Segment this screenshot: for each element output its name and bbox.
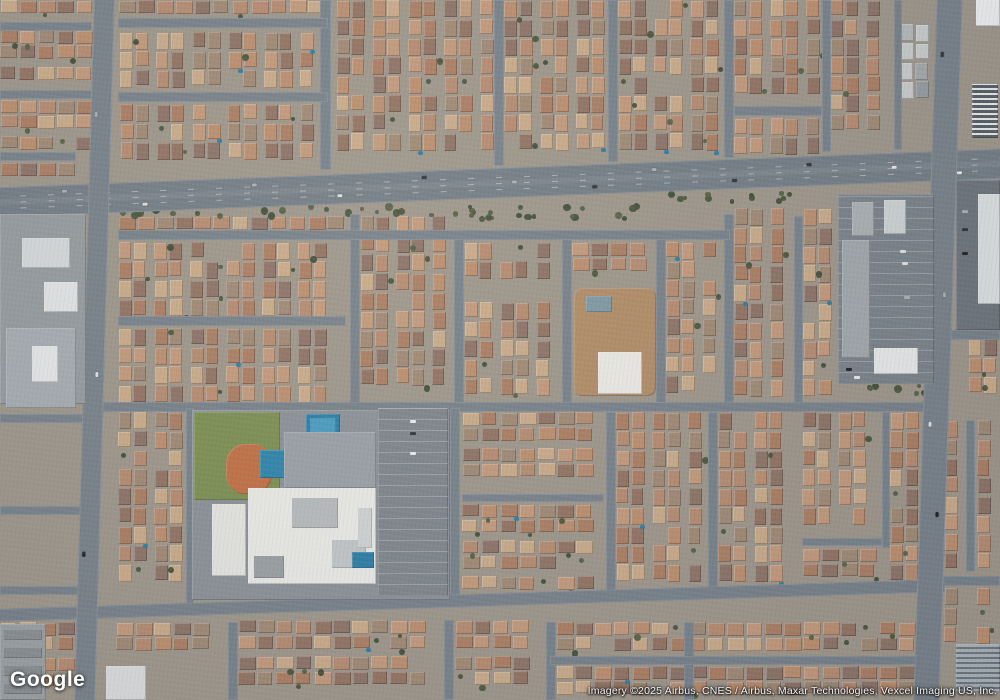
map-house — [352, 1, 365, 18]
map-house — [572, 243, 589, 256]
map-house — [134, 527, 147, 544]
map-house — [327, 216, 344, 229]
map-house — [653, 489, 665, 506]
map-house — [501, 321, 514, 338]
map-house — [842, 666, 859, 679]
map-house — [242, 243, 255, 260]
map-house — [412, 331, 424, 346]
map-tree — [592, 270, 598, 276]
map-house — [134, 243, 147, 260]
map-street — [118, 316, 346, 326]
map-house — [39, 1, 56, 13]
map-house — [804, 285, 817, 302]
map-house — [433, 254, 446, 269]
map-house — [455, 657, 472, 670]
map-house — [412, 311, 425, 328]
map-street — [0, 22, 92, 31]
map-house — [653, 564, 666, 579]
map-house — [372, 671, 387, 684]
map-house — [263, 329, 276, 346]
map-house — [134, 469, 147, 486]
map-house — [227, 348, 240, 363]
map-house — [519, 114, 532, 131]
map-tree — [718, 67, 722, 71]
map-house — [746, 667, 763, 680]
map-house — [830, 76, 843, 91]
map-house — [830, 0, 843, 15]
map-tree — [296, 684, 301, 689]
map-house — [630, 258, 647, 271]
map-house — [689, 432, 702, 449]
map-house — [906, 432, 919, 449]
map-house — [592, 38, 604, 55]
vehicle — [732, 179, 737, 182]
map-house — [520, 1, 532, 16]
map-street — [0, 506, 86, 515]
map-house — [121, 124, 134, 139]
map-house — [262, 367, 275, 384]
map-house — [691, 115, 703, 132]
map-house — [410, 636, 425, 648]
map-house — [632, 565, 645, 580]
map-house — [229, 32, 242, 49]
map-house — [750, 138, 763, 153]
map-house — [804, 228, 817, 245]
map-house — [191, 367, 203, 384]
map-house — [667, 507, 680, 522]
map-house — [390, 672, 407, 684]
map-house — [634, 39, 647, 54]
map-house — [831, 20, 843, 37]
map-house — [171, 52, 183, 69]
map-tree — [821, 363, 826, 368]
map-house — [703, 299, 716, 316]
vehicle — [337, 194, 342, 197]
map-house — [475, 657, 492, 670]
map-house — [519, 428, 534, 441]
map-house — [396, 311, 409, 328]
map-house — [119, 281, 132, 298]
map-house — [592, 258, 607, 270]
map-house — [409, 77, 422, 94]
map-house — [556, 134, 569, 151]
map-house — [501, 520, 516, 532]
map-house — [314, 261, 326, 278]
map-house — [170, 432, 183, 449]
map-house — [423, 38, 436, 55]
map-house — [591, 243, 608, 256]
map-house — [667, 451, 679, 468]
map-house — [867, 76, 880, 91]
map-house — [891, 413, 904, 430]
map-house — [750, 227, 763, 244]
map-house — [299, 386, 311, 403]
map-house — [57, 115, 74, 128]
map-house — [388, 95, 401, 112]
map-house — [20, 137, 37, 150]
satellite-map-canvas[interactable]: Google Imagery ©2025 Airbus, CNES / Airb… — [0, 0, 1000, 700]
map-house — [668, 432, 681, 447]
map-house — [298, 281, 310, 298]
map-house — [819, 209, 832, 224]
map-house — [557, 622, 574, 635]
map-tree — [131, 212, 139, 220]
vehicle — [962, 210, 968, 213]
map-house — [654, 115, 667, 130]
map-tree — [318, 669, 324, 675]
map-house — [171, 143, 183, 160]
map-house — [119, 386, 132, 403]
map-house — [481, 556, 496, 568]
vehicle — [962, 228, 968, 231]
map-street — [550, 656, 930, 665]
map-house — [770, 469, 783, 486]
map-house — [846, 114, 859, 129]
map-house — [632, 470, 645, 485]
map-house — [463, 464, 480, 476]
map-house — [136, 105, 149, 122]
map-house — [803, 508, 816, 525]
map-house — [652, 432, 665, 449]
map-house — [734, 285, 747, 302]
map-tree — [159, 126, 164, 131]
map-house — [668, 527, 681, 544]
vehicle — [592, 185, 597, 188]
map-house — [555, 115, 568, 132]
map-house — [733, 470, 746, 487]
map-house — [57, 1, 74, 13]
map-house — [397, 255, 410, 270]
map-house — [373, 76, 386, 93]
map-house — [278, 347, 291, 362]
map-house — [557, 464, 574, 477]
map-house — [290, 217, 305, 230]
map-house — [463, 413, 480, 426]
map-house — [803, 549, 820, 562]
map-house — [482, 464, 499, 477]
map-house — [819, 380, 832, 395]
map-house — [733, 507, 745, 522]
map-house — [298, 329, 311, 346]
map-house — [361, 312, 374, 329]
map-house — [839, 413, 852, 430]
retail-building-b — [884, 200, 906, 234]
map-house — [121, 142, 133, 159]
map-house — [591, 1, 604, 18]
map-house — [555, 57, 567, 74]
map-house — [866, 20, 879, 37]
map-street — [724, 214, 734, 408]
construction-pool — [586, 296, 612, 312]
map-house — [575, 666, 592, 679]
map-house — [784, 666, 801, 678]
map-house — [719, 507, 732, 524]
map-pool — [640, 525, 645, 529]
map-house — [557, 505, 574, 518]
map-house — [361, 254, 373, 271]
map-house — [252, 1, 269, 14]
map-house — [576, 541, 593, 554]
map-house — [244, 104, 257, 119]
map-house — [157, 105, 170, 122]
map-house — [412, 274, 425, 291]
map-house — [804, 342, 817, 359]
map-house — [334, 672, 351, 685]
map-house — [58, 163, 75, 176]
map-house — [120, 33, 133, 50]
map-house — [734, 432, 747, 449]
map-house — [905, 527, 918, 542]
map-house — [227, 300, 239, 317]
map-house — [770, 545, 782, 562]
map-tree — [25, 128, 30, 133]
map-house — [264, 124, 277, 141]
map-house — [191, 242, 204, 257]
map-pool — [514, 517, 519, 521]
map-house — [750, 380, 762, 397]
map-house — [58, 45, 75, 58]
map-tree — [324, 207, 329, 212]
vehicle — [935, 512, 938, 517]
map-house — [375, 330, 388, 347]
map-tree — [776, 198, 782, 204]
map-house — [538, 448, 555, 460]
map-tree — [390, 117, 395, 122]
map-house — [631, 527, 644, 544]
map-tree — [195, 211, 199, 215]
map-house — [314, 366, 327, 381]
imagery-attribution: Imagery ©2025 Airbus, CNES / Airbus, Max… — [588, 685, 997, 697]
map-house — [412, 350, 425, 365]
map-house — [770, 266, 783, 283]
retail-strip-building — [842, 240, 870, 358]
map-house — [516, 303, 529, 320]
map-house — [915, 63, 928, 80]
map-house — [853, 412, 865, 427]
map-house — [314, 300, 326, 317]
map-house — [155, 432, 167, 449]
map-house — [766, 667, 783, 680]
map-house — [839, 432, 851, 449]
map-house — [668, 565, 680, 582]
map-house — [880, 622, 895, 634]
map-house — [632, 412, 645, 429]
map-house — [376, 368, 388, 385]
map-house — [667, 262, 680, 279]
map-house — [424, 20, 436, 37]
map-house — [750, 246, 762, 261]
map-house — [298, 348, 310, 365]
map-house — [387, 0, 400, 17]
map-house — [734, 527, 747, 542]
map-house — [194, 217, 211, 229]
map-house — [867, 115, 880, 130]
map-house — [157, 71, 169, 88]
map-house — [703, 281, 716, 296]
map-house — [614, 638, 631, 651]
vehicle — [82, 552, 85, 557]
map-house — [501, 504, 518, 517]
map-house — [703, 356, 716, 373]
map-house — [169, 261, 181, 276]
map-tree — [683, 3, 688, 8]
map-house — [633, 667, 650, 680]
map-house — [193, 623, 210, 636]
map-house — [154, 508, 167, 525]
map-house — [295, 636, 312, 649]
map-house — [155, 637, 172, 650]
map-house — [119, 527, 132, 544]
map-house — [769, 412, 782, 429]
map-house — [176, 217, 193, 229]
map-tree — [302, 669, 307, 674]
map-house — [537, 322, 550, 337]
map-house — [205, 367, 217, 384]
map-house — [771, 77, 784, 94]
map-house — [481, 39, 494, 54]
map-house — [462, 504, 479, 516]
map-house — [541, 134, 553, 149]
map-street — [708, 412, 718, 598]
map-house — [314, 386, 326, 403]
map-house — [555, 39, 568, 56]
map-house — [634, 19, 647, 36]
map-house — [866, 58, 879, 75]
map-house — [670, 96, 683, 113]
map-street — [606, 412, 616, 598]
map-house — [371, 656, 388, 669]
map-house — [669, 19, 682, 36]
map-house — [227, 261, 240, 276]
map-house — [944, 608, 957, 625]
map-tree — [694, 323, 700, 329]
map-house — [576, 412, 593, 424]
map-house — [853, 450, 866, 467]
map-house — [372, 58, 384, 75]
map-house — [945, 588, 958, 605]
map-tree — [168, 567, 174, 573]
map-house — [277, 243, 290, 260]
east-white-building — [978, 194, 1000, 304]
map-house — [945, 534, 958, 551]
map-house — [155, 385, 168, 402]
map-house — [766, 638, 783, 651]
google-logo[interactable]: Google — [10, 668, 85, 692]
map-house — [537, 302, 550, 319]
map-tree — [279, 207, 286, 214]
map-house — [670, 133, 683, 148]
map-house — [134, 488, 147, 505]
map-house — [77, 1, 92, 13]
map-house — [819, 304, 832, 321]
map-house — [353, 636, 370, 648]
map-house — [409, 1, 422, 18]
map-house — [296, 621, 311, 634]
map-house — [520, 413, 537, 425]
map-house — [977, 588, 990, 605]
map-house — [169, 413, 182, 430]
map-house — [652, 623, 669, 635]
map-house — [891, 508, 903, 523]
map-house — [480, 76, 493, 93]
map-house — [890, 565, 903, 580]
map-house — [755, 451, 768, 468]
map-tree — [893, 491, 898, 496]
map-house — [501, 540, 516, 553]
map-house — [803, 469, 815, 486]
map-house — [208, 32, 221, 49]
map-house — [838, 451, 850, 466]
map-house — [193, 124, 206, 141]
map-house — [337, 57, 350, 74]
map-house — [481, 412, 496, 425]
map-house — [654, 96, 667, 111]
map-house — [706, 77, 719, 92]
map-house — [191, 386, 204, 403]
map-house — [891, 526, 904, 543]
map-house — [376, 255, 388, 272]
map-house — [846, 95, 859, 112]
map-house — [617, 451, 630, 466]
map-house — [803, 379, 815, 396]
map-house — [734, 323, 747, 340]
map-house — [666, 280, 679, 297]
map-tree — [437, 58, 443, 64]
map-house — [190, 261, 203, 278]
map-house — [906, 412, 919, 429]
map-house — [391, 656, 408, 669]
map-house — [501, 464, 518, 477]
map-house — [516, 379, 528, 394]
map-house — [860, 667, 877, 679]
map-house — [541, 20, 554, 35]
map-house — [412, 369, 424, 386]
map-house — [505, 58, 518, 73]
map-house — [494, 635, 511, 648]
map-house — [251, 217, 268, 230]
map-house — [155, 328, 168, 345]
map-house — [617, 470, 629, 487]
map-house — [846, 39, 859, 56]
map-house — [299, 300, 312, 317]
map-house — [278, 262, 291, 277]
map-house — [155, 281, 168, 298]
map-tree — [424, 385, 430, 391]
retail-building-c — [852, 202, 874, 236]
map-house — [119, 507, 131, 522]
map-house — [119, 348, 132, 363]
school-parking-lot — [378, 408, 448, 596]
map-house — [540, 1, 553, 18]
map-house — [592, 133, 605, 148]
map-house — [839, 470, 852, 487]
map-house — [786, 77, 798, 94]
map-house — [373, 0, 386, 17]
map-house — [821, 564, 838, 577]
map-house — [558, 541, 575, 553]
map-house — [258, 636, 273, 649]
map-house — [57, 67, 74, 79]
map-house — [38, 116, 55, 129]
map-house — [823, 622, 840, 635]
map-house — [170, 348, 182, 365]
map-house — [277, 657, 294, 669]
map-house — [445, 115, 458, 130]
map-house — [770, 508, 782, 525]
map-house — [755, 527, 768, 544]
map-house — [705, 57, 718, 74]
map-tree — [426, 79, 431, 84]
